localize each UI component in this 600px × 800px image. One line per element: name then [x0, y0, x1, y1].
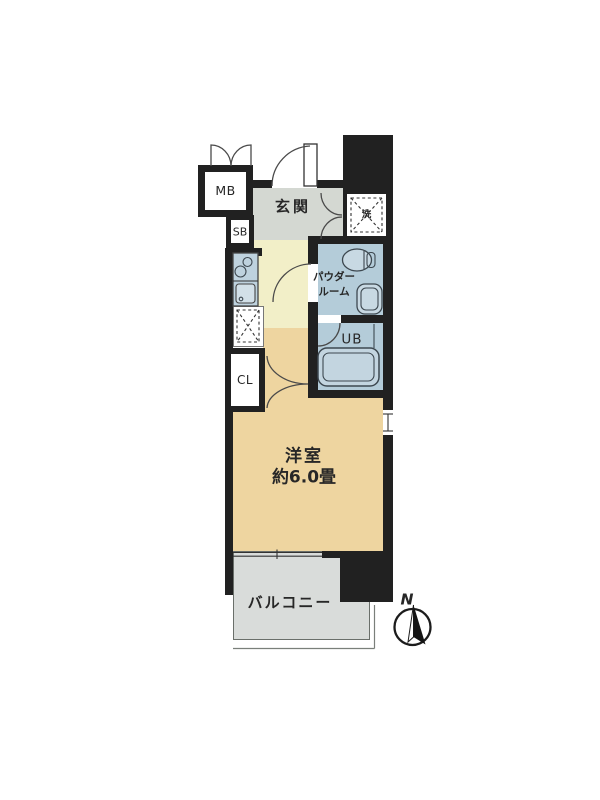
compass-needle-white — [408, 605, 414, 642]
wall-bath-bottom — [308, 390, 393, 398]
wall-right — [383, 190, 393, 558]
wall-shoebox-stub — [225, 248, 262, 256]
main-room-floor-below-closet — [233, 412, 263, 551]
entry-label: 玄関 — [275, 200, 311, 215]
fridge-space-box — [233, 306, 264, 347]
compass-circle — [395, 609, 431, 645]
meter-box-door-arcs — [211, 145, 251, 166]
main-room-label-line1: 洋室 — [285, 449, 323, 466]
floor-plan: MB SB 玄関 洗 パウダー ルーム UB CL 洋室 約6.0畳 バルコニー… — [0, 0, 600, 800]
right-window-gap — [383, 410, 393, 435]
wall-top-right-mass — [343, 135, 393, 190]
wall-left — [225, 256, 233, 595]
bath-door-gap — [318, 315, 341, 323]
wall-entry-top-left — [253, 180, 272, 188]
main-room-floor-left — [263, 328, 308, 551]
closet-label: CL — [237, 374, 253, 386]
powder-room-label-line1: パウダー — [313, 272, 355, 283]
entry-door — [272, 144, 317, 186]
compass-north-label: N — [401, 592, 414, 608]
wall-corner-block — [340, 557, 393, 602]
unit-bath-label: UB — [341, 333, 362, 347]
powder-room-label-line2: ルーム — [318, 287, 349, 298]
laundry-mark-label: 洗 — [362, 210, 372, 220]
balcony-label: バルコニー — [248, 596, 333, 611]
powder-door-gap — [308, 264, 318, 302]
meter-box-label: MB — [215, 185, 235, 198]
wall-entry-top-right — [317, 180, 343, 188]
shoe-box-label: SB — [233, 226, 248, 237]
compass — [395, 605, 431, 645]
main-room-label-line2: 約6.0畳 — [272, 470, 336, 487]
compass-needle-black — [414, 605, 426, 645]
